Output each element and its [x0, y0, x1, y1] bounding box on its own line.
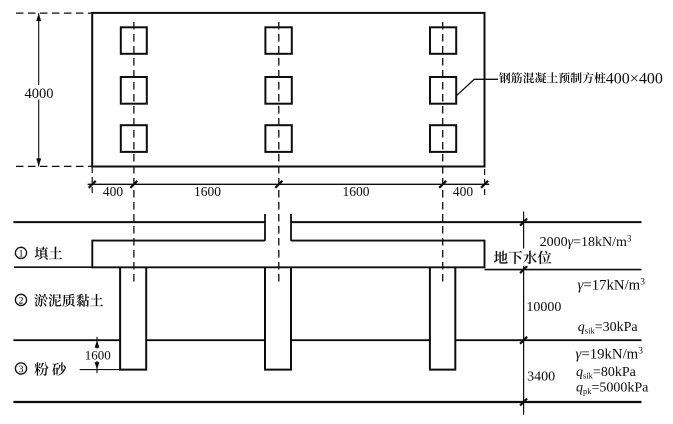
- svg-text:4000: 4000: [25, 86, 54, 102]
- svg-text:400: 400: [453, 184, 474, 199]
- svg-text:γ=19kN/m3: γ=19kN/m3: [576, 346, 644, 362]
- svg-text:10000: 10000: [526, 300, 561, 315]
- svg-text:2000γ=18kN/m3: 2000γ=18kN/m3: [540, 233, 632, 250]
- svg-text:γ=17kN/m3: γ=17kN/m3: [578, 277, 646, 293]
- svg-text:1600: 1600: [343, 184, 370, 199]
- svg-text:3400: 3400: [527, 370, 555, 385]
- svg-text:400×400: 400×400: [606, 70, 663, 87]
- svg-text:400: 400: [103, 184, 124, 199]
- svg-text:1600: 1600: [194, 184, 221, 199]
- svg-text:1600: 1600: [85, 348, 111, 363]
